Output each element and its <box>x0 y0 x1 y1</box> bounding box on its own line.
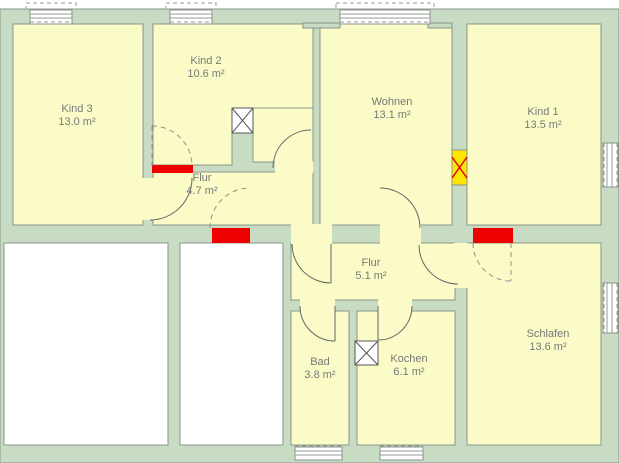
chimney-icon[interactable] <box>355 341 378 365</box>
chimney-icon[interactable] <box>232 108 253 133</box>
opening-kochen-door <box>378 299 412 312</box>
opening-niche-door <box>275 161 313 173</box>
neighbor-room-right <box>180 243 283 445</box>
window-bad-bottom[interactable] <box>295 446 342 460</box>
room-flur-upper[interactable] <box>153 172 313 225</box>
window-schlafen-right[interactable] <box>603 283 618 333</box>
room-kind2-niche[interactable] <box>253 108 313 162</box>
window-kochen-bottom[interactable] <box>380 446 423 460</box>
room-flur-lower[interactable] <box>291 243 455 300</box>
room-wohnen[interactable] <box>320 24 452 225</box>
red-door-marker-kind2[interactable] <box>152 165 193 173</box>
window-wohnen-top[interactable] <box>336 3 434 24</box>
room-bad[interactable] <box>291 311 349 445</box>
opening-schlafen-new-door <box>454 243 468 288</box>
room-schlafen[interactable] <box>467 243 601 445</box>
room-kochen[interactable] <box>357 311 455 445</box>
floor-plan-drawing <box>0 0 619 463</box>
wall-pillar-left <box>303 23 340 28</box>
window-kind2-top[interactable] <box>166 3 216 24</box>
red-door-marker-entrance[interactable] <box>212 228 250 243</box>
window-kind1-right[interactable] <box>603 143 618 187</box>
opening-bad-door <box>300 299 335 312</box>
opening-kind3-door <box>142 178 154 220</box>
opening-wohnen-door <box>380 224 421 244</box>
wall-pillar-right <box>428 23 452 28</box>
floor-plan-canvas: Kind 3 13.0 m² Kind 2 10.6 m² Wohnen 13.… <box>0 0 619 463</box>
opening-flur-connection <box>291 224 332 244</box>
yellow-door-marker-kind1[interactable] <box>452 150 467 185</box>
neighbor-room-left <box>4 243 168 445</box>
window-kind3-top[interactable] <box>26 3 76 24</box>
red-door-marker-schlafen[interactable] <box>473 228 513 243</box>
room-kind1[interactable] <box>467 24 601 225</box>
room-kind3[interactable] <box>13 24 143 225</box>
